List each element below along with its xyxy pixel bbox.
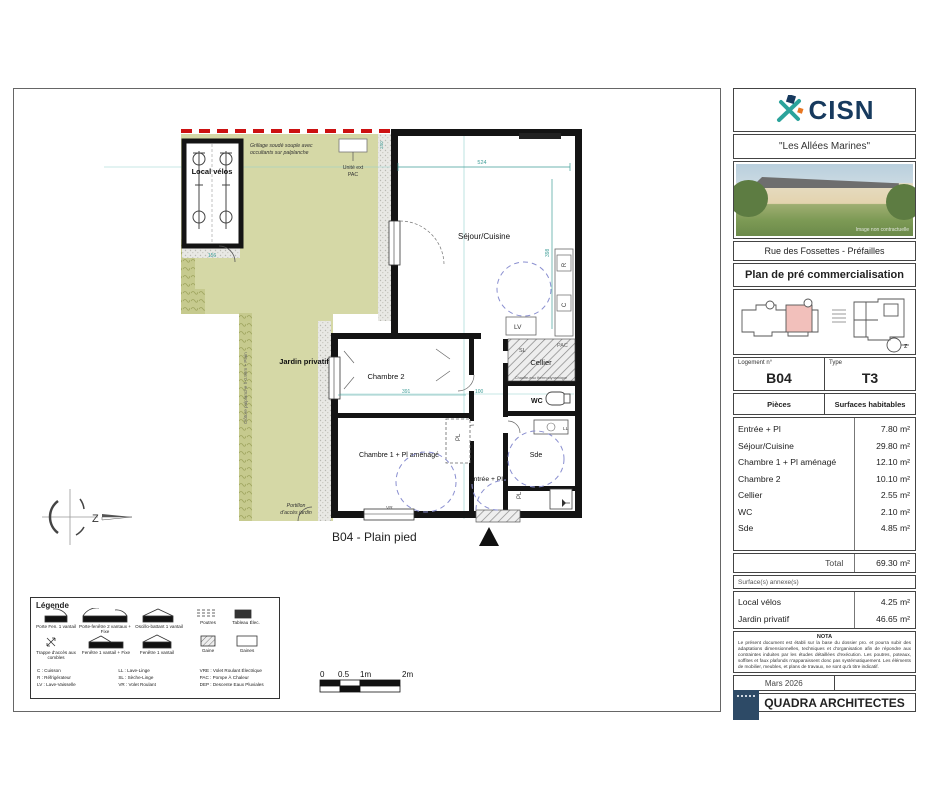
scale-1m: 1m <box>360 670 371 679</box>
photo-roof <box>750 177 899 189</box>
table-row: Jardin privatif 46.65 m² <box>734 611 915 628</box>
total-label: Total <box>734 558 855 568</box>
annex-header: Surface(s) annexe(s) <box>733 575 916 589</box>
address-box: Rue des Fossettes - Préfailles <box>733 241 916 261</box>
grillage-label-1: Grillage soudé souple avec <box>250 143 313 149</box>
photo-caption: Image non contractuelle <box>856 227 909 233</box>
photo-tree <box>733 180 768 217</box>
placard-label: PL <box>456 433 462 441</box>
nota-box: NOTA Le présent document est établi sur … <box>733 631 916 673</box>
volet-roulant-label: VR <box>386 505 393 511</box>
project-photo: Image non contractuelle <box>733 161 916 239</box>
local-velos-label: Local vélos <box>192 167 233 176</box>
table-row: WC 2.10 m² <box>734 504 915 521</box>
surfaces-header: Pièces Surfaces habitables <box>733 393 916 415</box>
portillon-label-2: d'accès jardin <box>280 510 312 516</box>
scale-2m: 2m <box>402 670 413 679</box>
type-label: Type <box>829 360 842 366</box>
cisn-star-icon <box>774 95 804 125</box>
abbrev-line: LV : Lave-Vaisselle <box>37 682 110 689</box>
legend-item: Poutres <box>193 620 223 625</box>
dim-100: 100 <box>475 389 484 395</box>
abbrev-line: VRE : Volet Roulant Électrique <box>200 668 273 675</box>
title-block: CISN "Les Allées Marines" Image non cont… <box>733 88 916 712</box>
chauffe-eau-label: Chauffe-eau thermodynamique <box>515 376 567 380</box>
entree-area: Entrée + Pl <box>469 476 506 510</box>
address: Rue des Fossettes - Préfailles <box>764 246 884 256</box>
surfaces-table: Entrée + Pl 7.80 m² Séjour/Cuisine 29.80… <box>733 417 916 551</box>
legend-item: Gaine <box>195 648 221 653</box>
legend-item: Gaines <box>233 648 261 653</box>
table-row: Entrée + Pl 7.80 m² <box>734 421 915 438</box>
room-label: Sde <box>734 523 855 533</box>
annex-area: 46.65 m² <box>855 614 915 624</box>
table-row: Séjour/Cuisine 29.80 m² <box>734 438 915 455</box>
legend-item: Porte-fenêtre 2 vantaux + Fixe <box>79 624 131 635</box>
project-title: "Les Allées Marines" <box>779 141 870 152</box>
table-row: Local vélos 4.25 m² <box>734 594 915 611</box>
date-row: Mars 2026 <box>733 675 916 691</box>
project-title-box: "Les Allées Marines" <box>733 134 916 159</box>
placard-label-2: PL <box>517 491 523 499</box>
dim-524: 524 <box>477 160 486 166</box>
unit-info: Logement n° B04 Type T3 <box>733 357 916 391</box>
legend-icons <box>31 608 277 674</box>
grillage-label-2: occultants sur palplanche <box>250 150 309 156</box>
room-area: 2.55 m² <box>855 490 915 500</box>
keyplan-compass-letter: z <box>904 343 908 350</box>
chambre2-room: Chambre 2 391 100 <box>338 349 484 395</box>
total-row: Total 69.30 m² <box>733 553 916 573</box>
poutres-icon <box>197 610 217 616</box>
unite-ext-label-2: PAC <box>348 172 359 178</box>
sde-room: LL Sde PL <box>508 420 572 509</box>
wc-label: WC <box>531 398 543 405</box>
table-row: Chambre 1 + Pl aménagé 12.10 m² <box>734 454 915 471</box>
type-value: T3 <box>825 370 915 386</box>
oscillo-battant-icon <box>143 616 173 622</box>
unite-ext-label-1: Unité ext <box>343 165 364 171</box>
room-area: 4.85 m² <box>855 523 915 533</box>
table-row: Sde 4.85 m² <box>734 520 915 537</box>
local-velos-room: Local vélos 156 <box>184 141 241 262</box>
dimensions: 524 398 <box>398 160 570 329</box>
logement-cell: Logement n° B04 <box>734 358 824 390</box>
quadra-logo <box>733 690 759 720</box>
room-area: 12.10 m² <box>855 457 915 467</box>
accessibility-circle <box>497 262 551 316</box>
compass-letter: Z <box>92 513 99 525</box>
table-row: Cellier 2.55 m² <box>734 487 915 504</box>
abbrev-line: DEP : Descente Eaux Pluviales <box>200 682 273 689</box>
palplanche-strip-2 <box>318 321 331 521</box>
gaine-icon <box>201 636 215 646</box>
nota-text: Le présent document est établi sur la ba… <box>738 640 911 669</box>
photo-image: Image non contractuelle <box>736 164 913 236</box>
room-label: Cellier <box>734 490 855 500</box>
logement-number: B04 <box>734 370 824 386</box>
scale-05: 0.5 <box>338 670 350 679</box>
chambre1-label: Chambre 1 + Pl aménagé <box>359 452 439 459</box>
room-label: Séjour/Cuisine <box>734 441 855 451</box>
fenetre-1v-fixe-icon <box>89 642 123 648</box>
legend-item: Oscillo-battant 1 vantail <box>135 624 183 629</box>
chambre2-label: Chambre 2 <box>367 372 404 381</box>
abbrev-line: R : Réfrigérateur <box>37 675 110 682</box>
entree-label: Entrée + Pl <box>469 476 503 483</box>
photo-tree <box>886 184 916 220</box>
abbrev-line: LL : Lave-Linge <box>118 668 191 675</box>
doc-title: Plan de pré commercialisation <box>745 269 904 281</box>
annex-area: 4.25 m² <box>855 597 915 607</box>
abbrev-line: SL : Sèche-Linge <box>118 675 191 682</box>
jardin-label: Jardin privatif <box>279 357 329 366</box>
architect-row: QUADRA ARCHITECTES <box>733 693 916 712</box>
annex-header-label: Surface(s) annexe(s) <box>738 579 799 586</box>
abbrev-line: VR : Volet Roulant <box>118 682 191 689</box>
brand-name: CISN <box>808 95 874 126</box>
fenetre-1v-icon <box>143 642 171 648</box>
cellier-room: SL PAC Cellier Chauffe-eau thermodynamiq… <box>508 339 575 381</box>
lave-vaisselle-label: LV <box>514 324 522 331</box>
sejour-label: Séjour/Cuisine <box>458 232 511 241</box>
annex-label: Local vélos <box>734 597 855 607</box>
legend: Légende <box>30 597 280 699</box>
legend-abbreviations: C : Cuisson R : Réfrigérateur LV : Lave-… <box>37 668 273 689</box>
legend-item: Fenêtre 1 vantail <box>135 650 179 655</box>
room-area: 2.10 m² <box>855 507 915 517</box>
scale-bar: 0 0.5 1m 2m <box>314 667 434 701</box>
abbrev-line: PAC : Pompe À Chaleur <box>200 675 273 682</box>
porte-fen-icon <box>45 616 67 622</box>
portillon-label-1: Portillon <box>287 503 306 509</box>
plan-sheet: Local vélos 156 Grillage soudé souple av… <box>0 0 933 800</box>
drawing-area: Local vélos 156 Grillage soudé souple av… <box>13 88 721 712</box>
tableau-elec-icon <box>235 610 251 618</box>
brand-header: CISN <box>733 88 916 132</box>
dim-398: 398 <box>545 248 551 257</box>
abbrev-line: C : Cuisson <box>37 668 110 675</box>
room-area: 7.80 m² <box>855 424 915 434</box>
room-area: 29.80 m² <box>855 441 915 451</box>
lave-linge-label: LL <box>563 426 569 432</box>
architect-name: QUADRA ARCHITECTES <box>734 696 915 710</box>
dim-156: 156 <box>208 253 217 259</box>
plan-caption: B04 - Plain pied <box>332 530 417 544</box>
type-cell: Type T3 <box>824 358 915 390</box>
room-label: Chambre 2 <box>734 474 855 484</box>
cuisson-label: C <box>562 302 568 307</box>
dim-391: 391 <box>402 389 411 395</box>
seche-linge-label: SL <box>519 348 526 354</box>
trappe-icon <box>47 638 55 646</box>
chambre1-room: Chambre 1 + Pl aménagé PL VR <box>359 419 470 512</box>
legend-item: Fenêtre 1 vantail + Fixe <box>81 650 131 655</box>
logement-label: Logement n° <box>738 360 772 366</box>
cellier-label: Cellier <box>530 358 552 367</box>
issue-date: Mars 2026 <box>734 676 835 690</box>
annex-table: Local vélos 4.25 m² Jardin privatif 46.6… <box>733 591 916 629</box>
dim-240: 240 <box>379 141 384 149</box>
annex-label: Jardin privatif <box>734 614 855 624</box>
room-label: Entrée + Pl <box>734 424 855 434</box>
entrance-triangle <box>479 527 499 546</box>
room-label: Chambre 1 + Pl aménagé <box>734 457 855 467</box>
scale-0: 0 <box>320 670 325 679</box>
porte-fenetre-2v-icon <box>83 616 127 622</box>
pieces-col-header: Pièces <box>734 394 824 414</box>
north-arrow: Z <box>40 487 135 557</box>
cloture-label: Clôture palplanche h 0.90m + Plain <box>243 352 248 424</box>
kitchen-counter: R C LV <box>497 249 573 336</box>
room-area: 10.10 m² <box>855 474 915 484</box>
key-plan-svg: z <box>734 290 915 354</box>
gaines-icon <box>237 636 257 646</box>
doc-title-box: Plan de pré commercialisation <box>733 263 916 287</box>
legend-item: Trappe d'accès aux combles <box>33 650 79 661</box>
total-value: 69.30 m² <box>855 558 915 568</box>
pac-label: PAC <box>557 343 568 349</box>
table-row: Chambre 2 10.10 m² <box>734 471 915 488</box>
surfaces-col-header: Surfaces habitables <box>824 394 915 414</box>
room-label: WC <box>734 507 855 517</box>
unite-pac-box <box>339 139 367 152</box>
legend-item: Tableau Élec. <box>229 620 263 625</box>
legend-item: Porte Fen. 1 vantail <box>33 624 79 629</box>
refrigerateur-label: R <box>562 262 568 267</box>
key-plan: z <box>733 289 916 355</box>
sde-label: Sde <box>530 452 543 459</box>
